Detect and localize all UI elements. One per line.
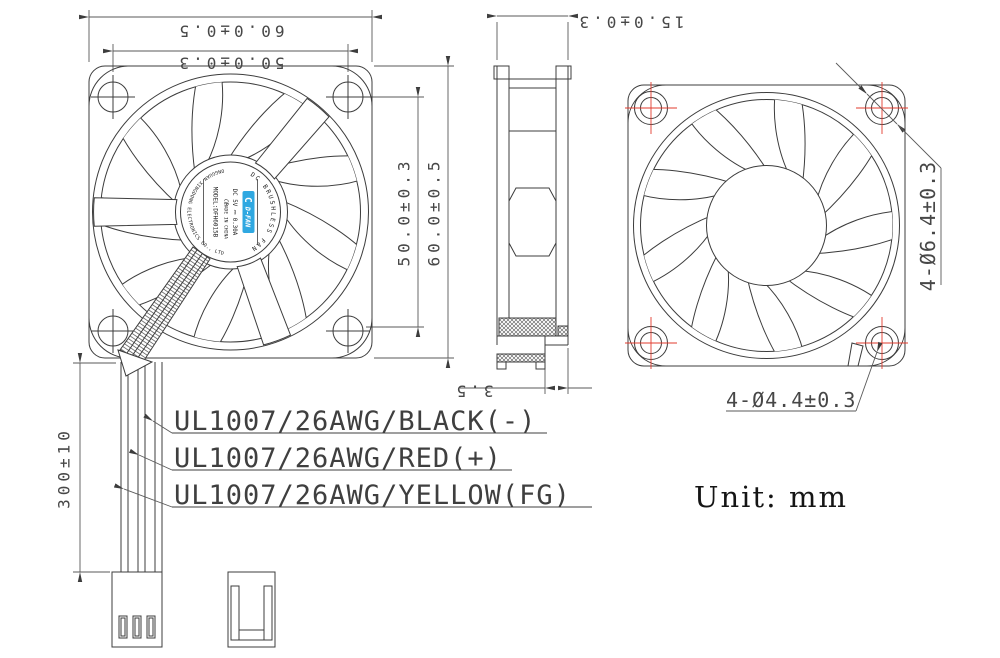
wire-label-red: UL1007/26AWG/RED(+)	[174, 443, 502, 474]
wire-lines	[121, 362, 162, 572]
hub-label-rating: DC 5V ⎓ 0.30A	[231, 189, 237, 236]
side-view	[460, 16, 592, 394]
dim-side-thickness: 15.0±0.3	[575, 13, 684, 32]
connector-3pin-front	[112, 572, 162, 647]
wire-dimension-lines	[73, 363, 172, 572]
connector-side-view	[228, 572, 275, 647]
drawing-line-art: DC BRUSHLESS FAN DONGGUAN XINGDONG ELECT…	[0, 0, 1000, 658]
side-flange-right	[556, 66, 571, 79]
hub-label-model: MODEL:DFH6015B	[212, 187, 219, 238]
unit-note: Unit: mm	[694, 480, 848, 514]
wire-label-black: UL1007/26AWG/BLACK(-)	[174, 406, 536, 437]
side-dimension-lines	[460, 16, 592, 394]
rear-corner-notch	[848, 343, 863, 366]
side-flange-left	[494, 66, 509, 79]
side-rotor-lower	[509, 243, 556, 256]
callout-hole-inner-dia: 4-Ø4.4±0.3	[726, 388, 856, 412]
rear-hub	[707, 166, 827, 286]
dfan-logo-c-icon: C	[242, 197, 253, 203]
hub-label: DC BRUSHLESS FAN DONGGUAN XINGDONG ELECT…	[181, 162, 281, 262]
rear-view	[614, 63, 941, 411]
wire-label-yellow: UL1007/26AWG/YELLOW(FG)	[174, 480, 571, 511]
hub-label-origin: MADE IN CHINA	[223, 203, 229, 239]
callout-hole-outer-dia: 4-Ø6.4±0.3	[916, 161, 940, 291]
dim-lead-length: 300±10	[55, 427, 74, 509]
dim-front-width-outer: 60.0±0.5	[175, 22, 284, 41]
dim-front-height-inner: 50.0±0.3	[395, 157, 414, 266]
dim-side-hub-step: 3.5	[453, 382, 494, 401]
side-rotor-upper	[509, 188, 556, 201]
dfan-logo-text: D-FAN	[243, 206, 251, 228]
side-hatched-base	[497, 318, 568, 369]
fan-technical-drawing: DC BRUSHLESS FAN DONGGUAN XINGDONG ELECT…	[0, 0, 1000, 658]
dim-front-height-outer: 60.0±0.5	[425, 157, 444, 266]
dim-front-width-inner: 50.0±0.3	[175, 54, 284, 73]
